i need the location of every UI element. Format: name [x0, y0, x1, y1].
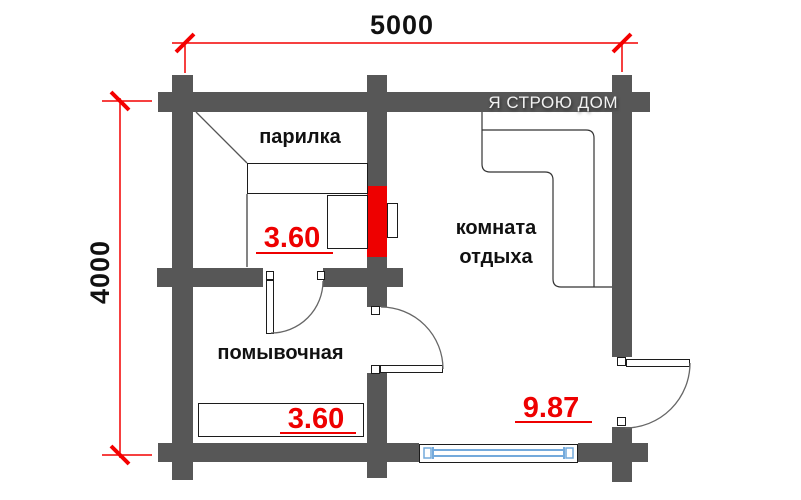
door-swing-arc-rest-room — [381, 307, 443, 369]
dimension-height-value: 4000 — [85, 222, 113, 322]
area-underline — [256, 252, 333, 254]
area-underline — [280, 432, 356, 434]
area-underline — [515, 421, 592, 423]
door-jamb — [371, 365, 380, 374]
stove-fuel-door — [387, 203, 398, 238]
area-value-steam-room: 3.60 — [252, 222, 332, 255]
watermark-text: Я СТРОЮ ДОМ — [460, 93, 618, 113]
wall-center-lower — [367, 373, 387, 478]
wall-center-upper — [367, 75, 387, 186]
door-jamb — [266, 271, 274, 280]
room-label-rest-room-line2: отдыха — [440, 243, 552, 272]
door-jamb — [317, 271, 325, 280]
door-swing-arc-entrance — [625, 363, 690, 428]
dimension-width-value: 5000 — [352, 10, 452, 41]
door-leaf-steam-room — [266, 280, 274, 334]
dimension-witness-top — [185, 43, 622, 73]
wall-center-middle — [367, 257, 387, 307]
room-label-steam-room: парилка — [250, 126, 350, 149]
wall-right-upper — [612, 75, 632, 357]
floor-plan: 5000 4000 парилка помывочная комната отд… — [0, 0, 801, 500]
corner-step-line — [196, 112, 247, 163]
sauna-bench-upper — [247, 163, 368, 194]
door-leaf-rest-room — [380, 365, 443, 373]
room-label-rest-room: комната отдыха — [440, 214, 552, 272]
wall-middle-right — [323, 268, 403, 287]
door-jamb — [617, 357, 626, 366]
stove-body — [327, 195, 368, 249]
door-jamb — [371, 306, 380, 315]
door-swing-arc-steam-room — [271, 281, 323, 333]
wall-middle-left — [157, 268, 263, 287]
wall-right-lower — [612, 427, 632, 482]
door-leaf-entrance — [626, 359, 690, 367]
window — [419, 444, 578, 463]
room-label-rest-room-line1: комната — [440, 214, 552, 243]
door-jamb — [617, 417, 626, 426]
plan-linework — [0, 0, 801, 500]
stove-firebox-channel — [367, 186, 387, 257]
room-label-washroom: помывочная — [208, 342, 353, 365]
